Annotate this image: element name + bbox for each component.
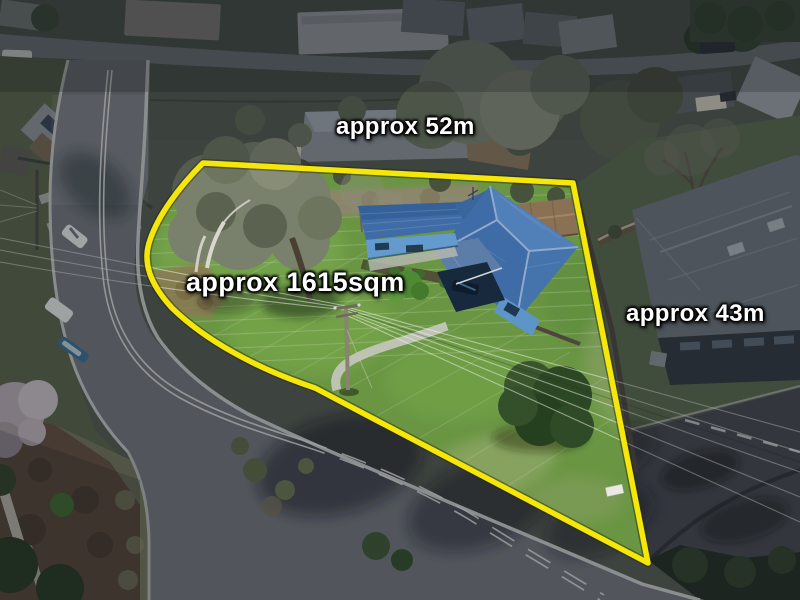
power-pole [346,306,348,390]
annotation-land-area: approx 1615sqm [186,267,405,298]
aerial-photo-listing-image: approx 52m approx 1615sqm approx 43m [0,0,800,600]
annotation-right-depth: approx 43m [626,300,765,328]
annotation-top-width: approx 52m [336,113,475,141]
